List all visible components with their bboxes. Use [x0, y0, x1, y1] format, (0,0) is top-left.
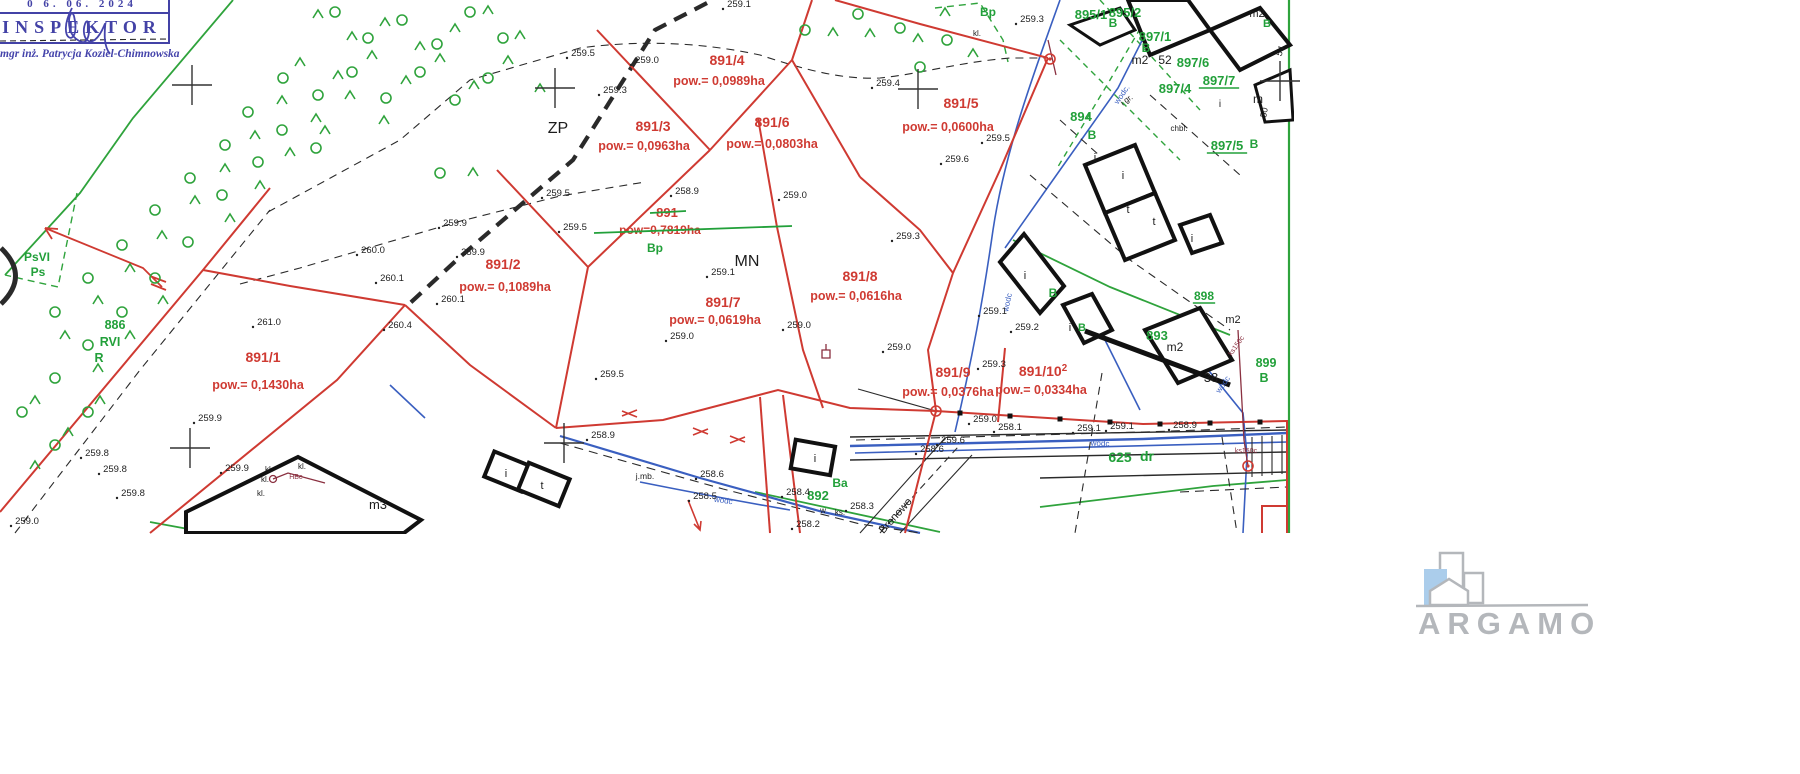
elevation-label: 259.3: [1020, 14, 1044, 25]
tree-circle-symbol: [185, 173, 195, 183]
map-label: kl.: [257, 489, 265, 498]
map-label: pow.= 0,0376ha: [902, 385, 995, 399]
elevation-label: 258.5: [693, 491, 717, 502]
map-label: R: [94, 351, 103, 365]
road-survey-dot: [1008, 414, 1013, 419]
elevation-label: 259.3: [982, 359, 1006, 370]
elevation-label: 258.6: [920, 444, 944, 455]
tree-circle-symbol: [450, 95, 460, 105]
map-label: 891/4: [709, 52, 744, 68]
tree-circle-symbol: [83, 340, 93, 350]
map-label: m2: [1249, 8, 1264, 20]
elevation-label: 258.6: [700, 469, 724, 480]
tree-circle-symbol: [50, 307, 60, 317]
elevation-label: 259.1: [711, 267, 735, 278]
map-label: B: [1078, 322, 1086, 334]
map-label: kl.: [298, 462, 306, 471]
map-label: 52: [1158, 53, 1172, 67]
tree-circle-symbol: [498, 33, 508, 43]
map-label: wodc: [1090, 439, 1110, 449]
map-label: ZP: [548, 120, 568, 137]
map-label: pow.= 0,0334ha: [995, 383, 1088, 397]
map-label: m2: [1132, 53, 1149, 67]
tree-circle-symbol: [915, 62, 925, 72]
grid-cross-mark: [898, 69, 938, 109]
tree-caret-symbol: [345, 91, 355, 99]
map-label: MN: [735, 253, 760, 270]
map-label: B: [1259, 371, 1268, 385]
map-label: m3: [369, 497, 387, 512]
tree-caret-symbol: [30, 396, 40, 404]
tree-caret-symbol: [277, 96, 287, 104]
elevation-label: 258.9: [675, 186, 699, 197]
map-label: 899: [1256, 356, 1277, 370]
map-label: 897/6: [1177, 55, 1210, 70]
map-label: pow.= 0,1089ha: [459, 280, 552, 294]
tree-circle-symbol: [435, 168, 445, 178]
elevation-label: 259.0: [787, 320, 811, 331]
map-label: kl.: [265, 465, 273, 474]
elevation-label: 259.0: [973, 414, 997, 425]
map-label: pow.= 0,0989ha: [673, 74, 766, 88]
elevation-label: 259.0: [15, 516, 39, 527]
elevation-label: 259.9: [225, 463, 249, 474]
elevation-label: 259.0: [783, 190, 807, 201]
tree-circle-symbol: [895, 23, 905, 33]
tree-caret-symbol: [313, 10, 323, 18]
elevation-label: 259.1: [1110, 421, 1134, 432]
map-label: pow.= 0,0619ha: [669, 313, 762, 327]
elevation-label: 258.3: [850, 501, 874, 512]
elevation-label: 259.1: [727, 0, 751, 10]
stamp-signer: mgr inż. Patrycja Koziel-Chimnowska: [0, 48, 230, 60]
tree-caret-symbol: [190, 196, 200, 204]
elevation-label: 259.5: [571, 48, 595, 59]
tree-circle-symbol: [277, 125, 287, 135]
map-label: 897/5: [1211, 138, 1244, 153]
tree-caret-symbol: [865, 29, 875, 37]
map-label: 895/1: [1075, 7, 1108, 22]
map-canvas: 891/1pow.= 0,1430ha891/2pow.= 0,1089ha89…: [0, 0, 1800, 774]
tree-caret-symbol: [913, 34, 923, 42]
road-survey-dot: [1208, 421, 1213, 426]
map-label: w: [819, 506, 826, 515]
elevation-label: 258.4: [786, 487, 810, 498]
tree-caret-symbol: [93, 364, 103, 372]
map-label: B: [1049, 286, 1058, 300]
map-label: Ba: [832, 476, 848, 490]
tree-circle-symbol: [942, 35, 952, 45]
tree-caret-symbol: [483, 6, 493, 14]
tree-circle-symbol: [363, 33, 373, 43]
map-label: Bp: [647, 241, 663, 255]
elevation-label: 259.5: [563, 222, 587, 233]
map-label: ks150c: [1235, 448, 1258, 455]
tree-caret-symbol: [158, 296, 168, 304]
elevation-label: 259.9: [443, 218, 467, 229]
elevation-label: 259.8: [103, 464, 127, 475]
road-survey-dot: [958, 411, 963, 416]
map-label: i: [814, 453, 816, 465]
tree-caret-symbol: [60, 331, 70, 339]
tree-caret-symbol: [450, 24, 460, 32]
tree-caret-symbol: [401, 76, 411, 84]
tree-caret-symbol: [828, 28, 838, 36]
map-label: 886: [105, 318, 126, 332]
map-label: pow.= 0,0600ha: [902, 120, 995, 134]
map-label: pow.= 0,1430ha: [212, 378, 305, 392]
elevation-label: 259.9: [461, 247, 485, 258]
elevation-label: 259.8: [85, 448, 109, 459]
map-label: 892: [807, 488, 829, 503]
tree-caret-symbol: [468, 168, 478, 176]
tree-caret-symbol: [940, 8, 950, 16]
map-label: B: [1250, 137, 1259, 151]
map-label: 894: [1070, 109, 1092, 124]
tree-circle-symbol: [117, 240, 127, 250]
tree-circle-symbol: [397, 15, 407, 25]
tree-caret-symbol: [333, 71, 343, 79]
tree-caret-symbol: [255, 181, 265, 189]
map-label: i: [1094, 152, 1096, 164]
map-label: 38: [1204, 370, 1218, 385]
tree-circle-symbol: [347, 67, 357, 77]
tree-caret-symbol: [435, 54, 445, 62]
map-label: 625: [1108, 449, 1132, 465]
elevation-label: 260.1: [380, 273, 404, 284]
elevation-label: 259.5: [986, 133, 1010, 144]
tree-caret-symbol: [320, 126, 330, 134]
tree-circle-symbol: [278, 73, 288, 83]
map-label: 891/1: [245, 349, 280, 365]
map-label: chbl.: [1171, 124, 1188, 133]
map-label: 891/9: [935, 364, 970, 380]
map-label: 893: [1146, 328, 1168, 343]
map-label: 891/8: [842, 268, 877, 284]
tree-caret-symbol: [503, 56, 513, 64]
elevation-label: 258.1: [998, 422, 1022, 433]
elevation-label: 261.0: [257, 317, 281, 328]
tree-caret-symbol: [515, 31, 525, 39]
elevation-label: 258.2: [796, 519, 820, 530]
tree-caret-symbol: [220, 164, 230, 172]
tree-circle-symbol: [253, 157, 263, 167]
argamo-buildings-icon: [1416, 546, 1596, 610]
tree-circle-symbol: [50, 373, 60, 383]
tree-circle-symbol: [432, 39, 442, 49]
map-label: B: [1109, 16, 1118, 30]
map-label: dr: [1140, 448, 1155, 464]
map-label: RVI: [100, 335, 121, 349]
map-label: pow.= 0,0803ha: [726, 137, 819, 151]
map-label: i: [1024, 270, 1026, 282]
elevation-label: 259.1: [983, 306, 1007, 317]
grid-cross-mark: [170, 428, 210, 468]
argamo-wordmark: ARGAMO: [1418, 606, 1601, 642]
map-label: 891/5: [943, 95, 978, 111]
map-label: m: [1253, 92, 1263, 106]
map-label: t: [1152, 216, 1155, 228]
tree-circle-symbol: [483, 73, 493, 83]
elevation-label: 259.4: [876, 78, 900, 89]
tree-caret-symbol: [968, 49, 978, 57]
map-label: 891/102: [1019, 363, 1068, 379]
map-label: m2: [1225, 314, 1240, 326]
tree-caret-symbol: [125, 331, 135, 339]
map-label: ks.: [835, 508, 845, 517]
tree-caret-symbol: [379, 116, 389, 124]
tree-caret-symbol: [469, 81, 479, 89]
road-survey-dot: [1108, 420, 1113, 425]
map-label: 897/7: [1203, 73, 1236, 88]
tree-circle-symbol: [381, 93, 391, 103]
map-label: i: [1069, 322, 1071, 334]
elevation-label: 260.0: [361, 245, 385, 256]
map-label: 891/7: [705, 294, 740, 310]
map-label: 897/4: [1159, 81, 1192, 96]
tree-caret-symbol: [415, 42, 425, 50]
grid-cross-mark: [535, 68, 575, 108]
elevation-label: 259.3: [896, 231, 920, 242]
elevation-label: 258.9: [1173, 420, 1197, 431]
tree-caret-symbol: [347, 32, 357, 40]
tree-circle-symbol: [330, 7, 340, 17]
elevation-label: 259.6: [945, 154, 969, 165]
elevation-label: 259.5: [546, 188, 570, 199]
map-label: ks150c: [1228, 335, 1247, 358]
inspector-stamp: 0 6. 06. 2024 INSPEKTOR mgr inż. Patrycj…: [0, 0, 230, 72]
grid-cross-mark: [544, 423, 584, 463]
elevation-label: 259.0: [887, 342, 911, 353]
road-survey-dot: [1258, 420, 1263, 425]
argamo-logo: ARGAMO: [1416, 546, 1596, 646]
tree-circle-symbol: [415, 67, 425, 77]
tree-circle-symbol: [313, 90, 323, 100]
cadastral-map-page: { "stamp": { "date": "0 6. 06. 2024", "t…: [0, 0, 1800, 774]
tree-caret-symbol: [285, 148, 295, 156]
map-label: Bp: [980, 5, 996, 19]
map-label: m2: [1167, 340, 1184, 354]
tree-caret-symbol: [295, 58, 305, 66]
elevation-label: 259.0: [635, 55, 659, 66]
tree-caret-symbol: [250, 131, 260, 139]
map-label: 50: [1258, 107, 1270, 119]
map-label: i: [505, 468, 507, 480]
elevation-label: 258.9: [591, 430, 615, 441]
tree-circle-symbol: [465, 7, 475, 17]
map-label: B: [1088, 128, 1097, 142]
black-lines: [0, 3, 1287, 533]
map-label: 891/2: [485, 256, 520, 272]
tree-circle-symbol: [853, 9, 863, 19]
tree-circle-symbol: [183, 237, 193, 247]
map-label: PsVI: [24, 250, 50, 264]
elevation-label: 260.4: [388, 320, 412, 331]
map-label: pow.= 0,0616ha: [810, 289, 903, 303]
tree-circle-symbol: [150, 205, 160, 215]
elevation-label: 259.6: [941, 435, 965, 446]
tree-caret-symbol: [367, 51, 377, 59]
map-label: HBe: [289, 474, 303, 481]
road-survey-dot: [1058, 417, 1063, 422]
elevation-label: 259.2: [1015, 322, 1039, 333]
map-label: kl.: [261, 475, 269, 484]
map-label: Ps: [31, 265, 46, 279]
tree-caret-symbol: [157, 231, 167, 239]
map-label: kl.: [973, 29, 981, 38]
tree-circle-symbol: [311, 143, 321, 153]
tree-circle-symbol: [217, 190, 227, 200]
elevation-label: 259.5: [600, 369, 624, 380]
map-label: 898: [1194, 289, 1214, 303]
elevation-label: 260.1: [441, 294, 465, 305]
map-label: i: [1191, 233, 1193, 245]
tree-circle-symbol: [117, 307, 127, 317]
tree-circle-symbol: [220, 140, 230, 150]
elevation-label: 259.8: [121, 488, 145, 499]
tree-caret-symbol: [380, 18, 390, 26]
map-label: i: [1219, 99, 1221, 110]
map-label: pow.= 0,0963ha: [598, 139, 691, 153]
tree-caret-symbol: [93, 296, 103, 304]
elevation-label: 259.9: [198, 413, 222, 424]
tree-circle-symbol: [83, 273, 93, 283]
tree-circle-symbol: [17, 407, 27, 417]
red-lines: [0, 0, 1287, 533]
tree-caret-symbol: [311, 114, 321, 122]
map-label: 891/3: [635, 118, 670, 134]
tree-caret-symbol: [225, 214, 235, 222]
map-label: t: [540, 480, 543, 492]
map-label: 891/6: [754, 114, 789, 130]
map-label: j.mb.: [635, 471, 654, 481]
elevation-label: 259.1: [1077, 423, 1101, 434]
road-survey-dot: [1158, 422, 1163, 427]
tree-caret-symbol: [125, 264, 135, 272]
elevation-label: 259.0: [670, 331, 694, 342]
map-label: t: [1126, 204, 1129, 216]
green-lines: [5, 0, 1289, 533]
tree-circle-symbol: [243, 107, 253, 117]
elevation-label: 259.3: [603, 85, 627, 96]
map-label: i: [1122, 170, 1124, 182]
